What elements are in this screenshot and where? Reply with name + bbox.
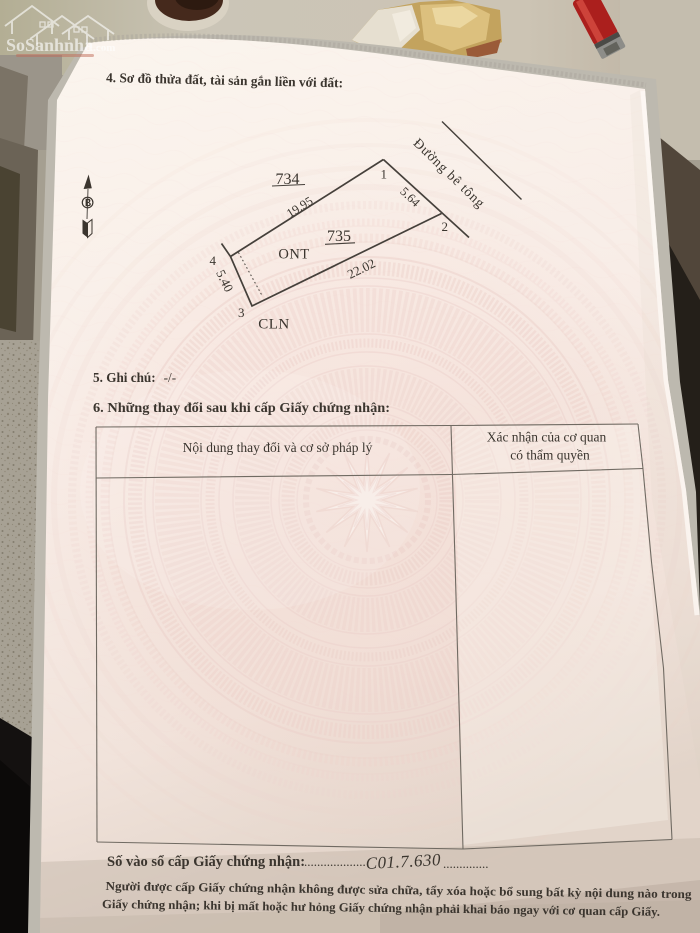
- svg-text:có thẩm quyền: có thẩm quyền: [510, 448, 590, 463]
- svg-text:2: 2: [442, 219, 449, 234]
- svg-text:...................: ...................: [304, 854, 366, 869]
- svg-text:735: 735: [327, 228, 351, 245]
- svg-text:..............: ..............: [443, 856, 489, 871]
- svg-text:Xác nhận của cơ quan: Xác nhận của cơ quan: [487, 430, 607, 445]
- svg-text:6. Những thay đổi sau khi cấp: 6. Những thay đổi sau khi cấp Giấy chứng…: [93, 400, 390, 415]
- svg-text:CLN: CLN: [258, 317, 290, 333]
- svg-text:4: 4: [210, 253, 217, 268]
- svg-text:C01.7.630: C01.7.630: [365, 850, 441, 873]
- svg-text:5. Ghi chú:-/-: 5. Ghi chú:-/-: [93, 370, 176, 385]
- svg-text:1: 1: [381, 167, 388, 182]
- svg-text:ONT: ONT: [278, 247, 309, 263]
- svg-text:3: 3: [238, 305, 245, 320]
- svg-text:Nội dung thay đổi và cơ sở phá: Nội dung thay đổi và cơ sở pháp lý: [183, 440, 373, 455]
- svg-text:Số vào sổ cấp Giấy chứng nhận:: Số vào sổ cấp Giấy chứng nhận:: [107, 854, 305, 870]
